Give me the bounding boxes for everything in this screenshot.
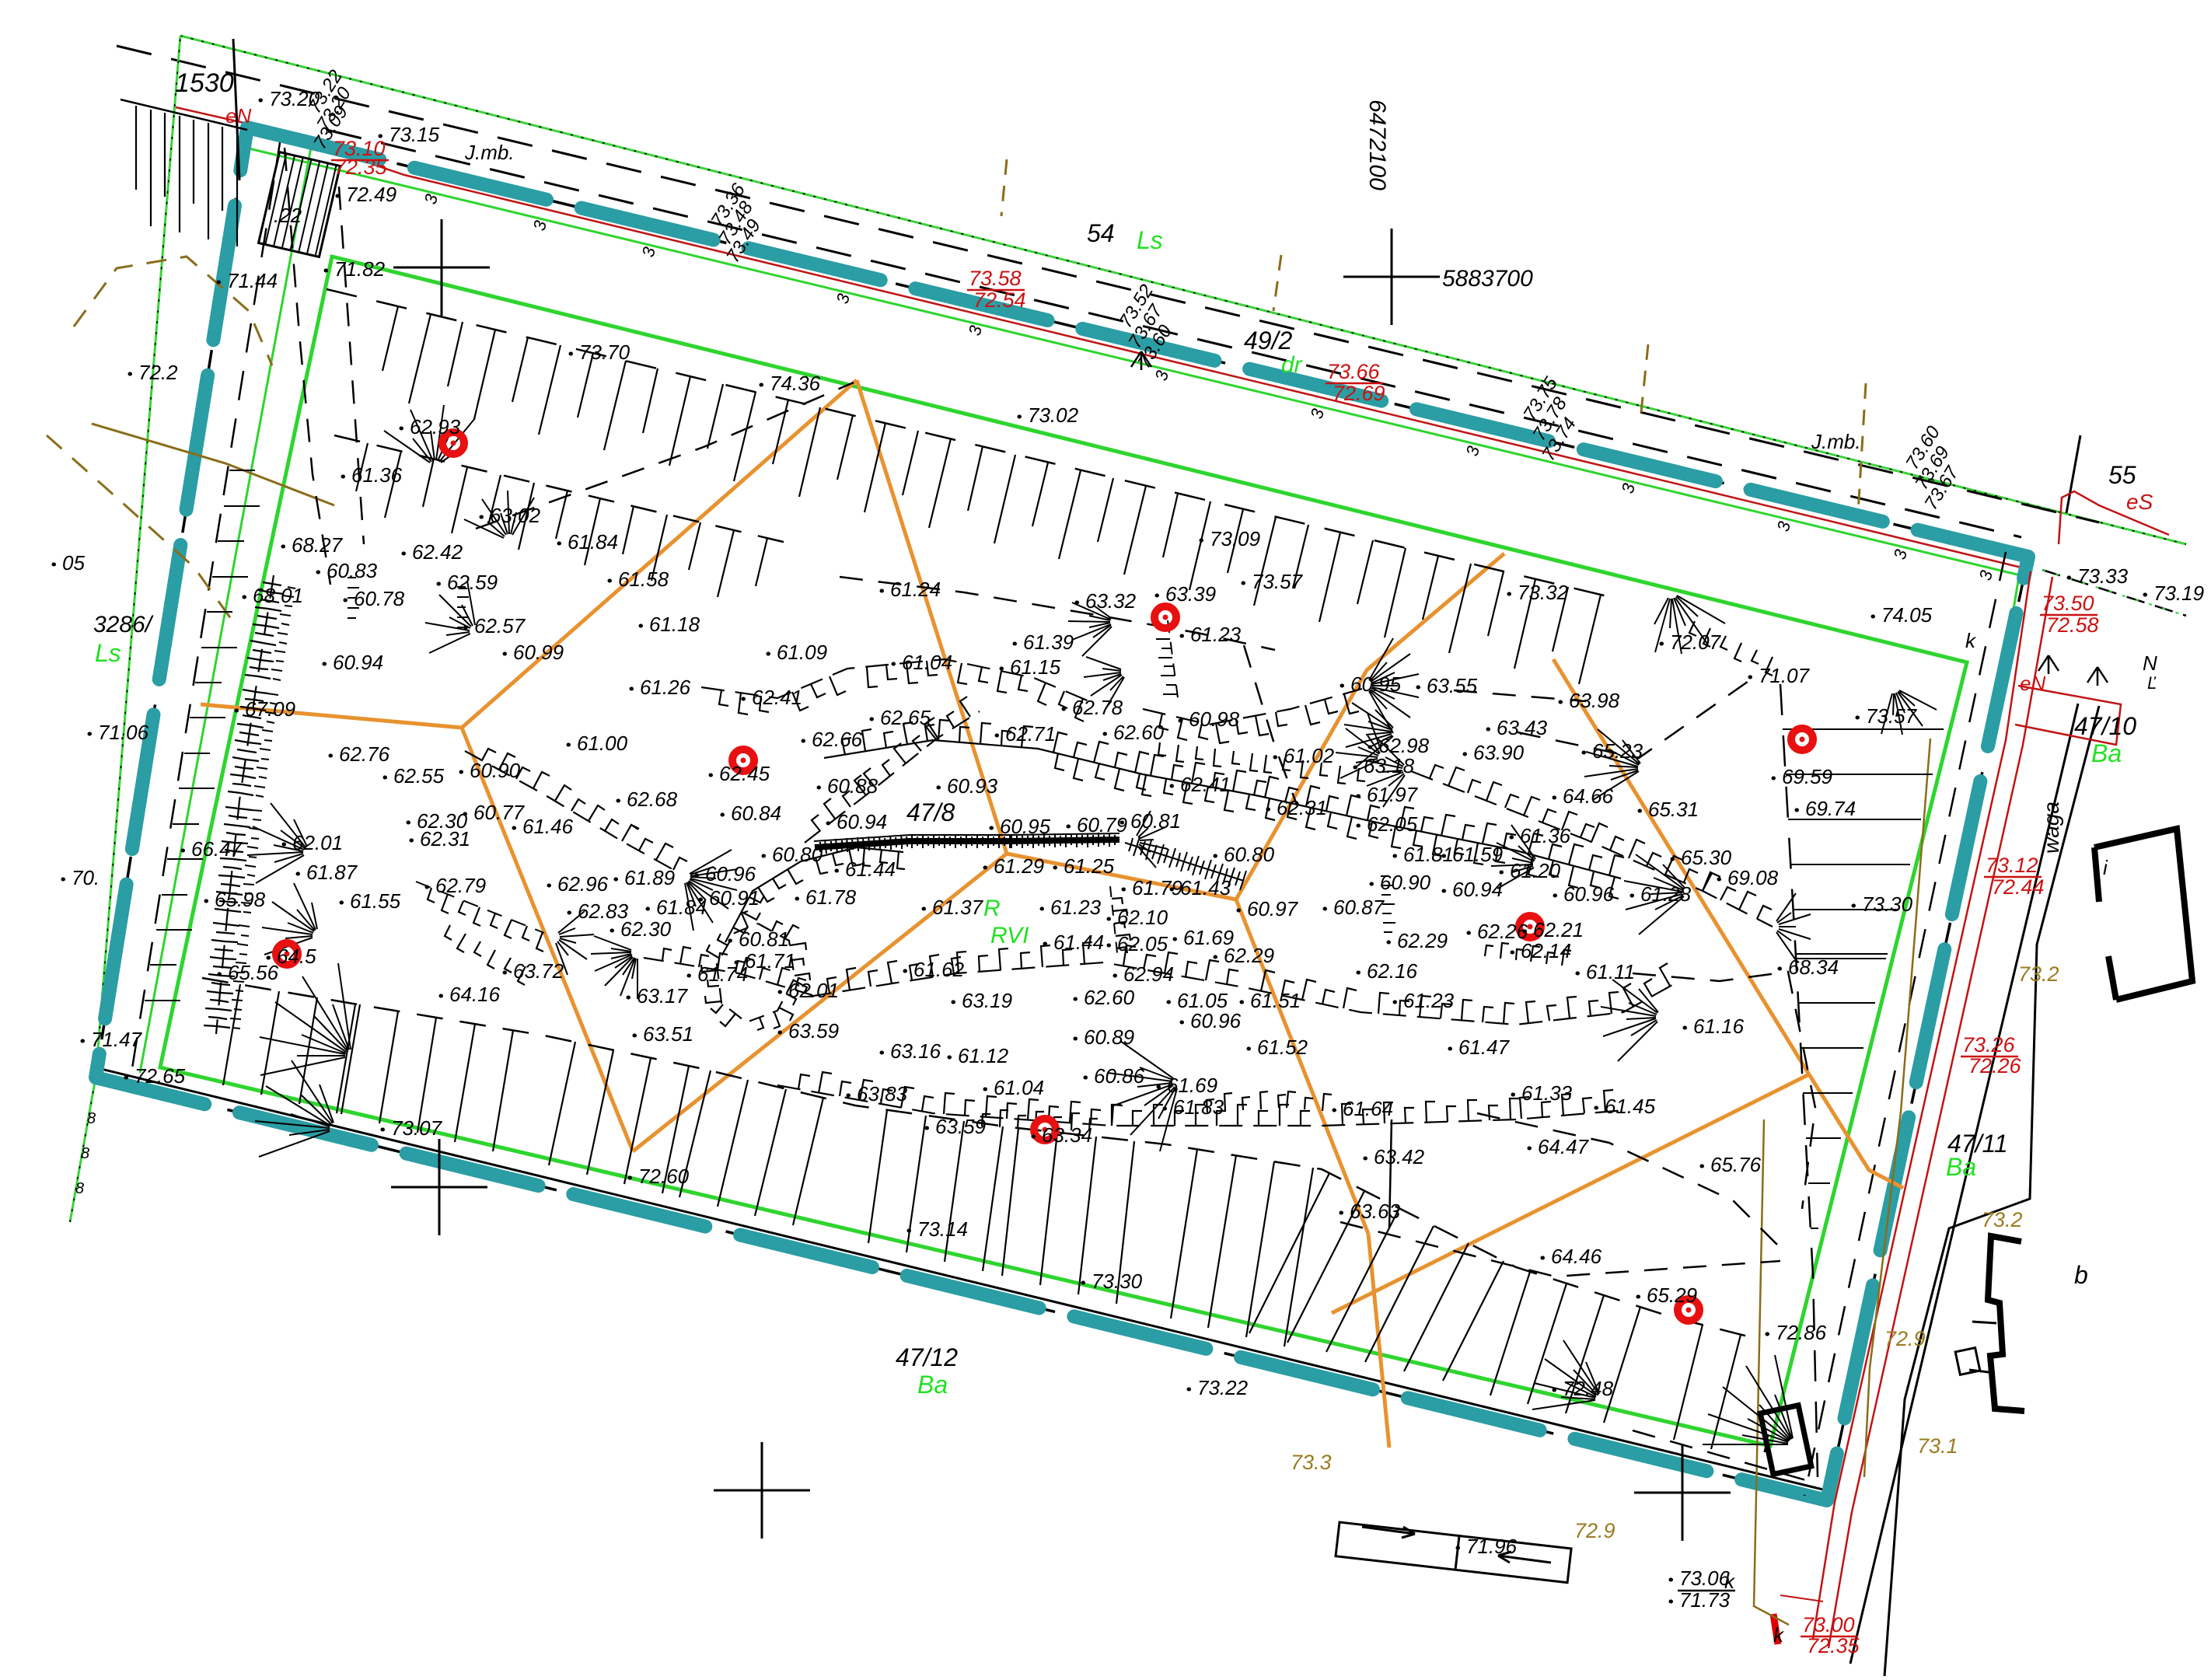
svg-text:61.79: 61.79	[1132, 876, 1182, 899]
svg-text:72.48: 72.48	[1563, 1377, 1614, 1400]
svg-text:62.01: 62.01	[788, 979, 839, 1002]
svg-text:60.86: 60.86	[1094, 1064, 1145, 1088]
svg-text:73.22: 73.22	[1197, 1376, 1249, 1399]
svg-text:61.37: 61.37	[932, 896, 984, 919]
svg-text:72.9: 72.9	[1884, 1327, 1926, 1350]
svg-text:61.62: 61.62	[913, 958, 965, 981]
svg-text:71.73: 71.73	[1679, 1588, 1731, 1612]
svg-text:60.98: 60.98	[1189, 707, 1240, 731]
svg-text:61.23: 61.23	[1050, 896, 1102, 919]
svg-text:61.51: 61.51	[1250, 989, 1301, 1012]
svg-text:J.mb.: J.mb.	[1811, 430, 1861, 453]
svg-text:60.95: 60.95	[1000, 815, 1051, 838]
svg-text:73.06: 73.06	[1679, 1566, 1731, 1590]
svg-text:73.07: 73.07	[391, 1116, 443, 1140]
svg-text:72.2: 72.2	[138, 361, 178, 384]
svg-text:Ls: Ls	[95, 639, 121, 667]
svg-text:72.65: 72.65	[134, 1064, 186, 1088]
svg-text:62.05: 62.05	[1367, 812, 1418, 836]
svg-text:J.mb.: J.mb.	[464, 141, 515, 164]
svg-text:61.83: 61.83	[1173, 1095, 1224, 1119]
svg-text:71.47: 71.47	[91, 1028, 143, 1051]
svg-text:60.97: 60.97	[1247, 897, 1299, 920]
svg-text:60.94: 60.94	[837, 810, 887, 833]
svg-text:60.96: 60.96	[1563, 882, 1615, 906]
svg-text:69.08: 69.08	[1727, 866, 1779, 889]
svg-text:71.07: 71.07	[1759, 664, 1811, 687]
svg-text:1530: 1530	[175, 68, 234, 98]
svg-text:61.36: 61.36	[351, 463, 403, 487]
svg-text:Ba: Ba	[1946, 1153, 1976, 1181]
svg-text:64.46: 64.46	[1551, 1245, 1602, 1268]
svg-text:05: 05	[62, 551, 85, 575]
svg-text:69.74: 69.74	[1805, 797, 1856, 820]
svg-text:73.58: 73.58	[969, 267, 1022, 290]
svg-text:72.58: 72.58	[2046, 613, 2099, 637]
svg-text:63.43: 63.43	[1497, 716, 1548, 739]
svg-text:62.57: 62.57	[474, 614, 526, 637]
svg-text:60.80: 60.80	[1224, 843, 1275, 866]
svg-text:64.16: 64.16	[449, 983, 501, 1006]
svg-text:62.60: 62.60	[1084, 986, 1135, 1009]
svg-text:47/8: 47/8	[906, 798, 955, 826]
svg-text:60.78: 60.78	[354, 587, 405, 610]
svg-text:61.33: 61.33	[1521, 1081, 1573, 1105]
svg-text:62.05: 62.05	[1117, 932, 1168, 955]
svg-text:61.25: 61.25	[1064, 854, 1115, 878]
svg-text:60.89: 60.89	[1084, 1025, 1134, 1049]
svg-text:61.71: 61.71	[745, 949, 795, 973]
svg-text:61.44: 61.44	[1053, 931, 1104, 954]
svg-text:63.39: 63.39	[1165, 582, 1216, 606]
svg-text:61.11: 61.11	[1586, 960, 1635, 983]
svg-text:61.24: 61.24	[890, 578, 941, 601]
svg-text:60.96: 60.96	[1190, 1009, 1242, 1032]
svg-text:74.05: 74.05	[1881, 603, 1933, 627]
svg-text:k: k	[1965, 629, 1977, 652]
svg-text:60.84: 60.84	[731, 802, 781, 825]
svg-text:70.: 70.	[72, 866, 100, 889]
svg-text:71.96: 71.96	[1466, 1535, 1518, 1558]
svg-text:61.89: 61.89	[624, 866, 675, 889]
svg-text:64.5: 64.5	[277, 945, 316, 968]
svg-text:73.26: 73.26	[1962, 1033, 2016, 1057]
svg-text:73.2: 73.2	[1982, 1208, 2023, 1231]
svg-text:62.55: 62.55	[393, 764, 445, 788]
svg-text:65.30: 65.30	[1681, 846, 1732, 869]
svg-text:62.29: 62.29	[1397, 929, 1448, 952]
svg-text:60.90: 60.90	[1380, 871, 1431, 894]
svg-text:61.23: 61.23	[1403, 989, 1455, 1012]
svg-text:62.66: 62.66	[812, 728, 863, 751]
svg-text:62.41: 62.41	[1180, 773, 1231, 796]
svg-text:61.02: 61.02	[1284, 744, 1335, 767]
svg-text:64.47: 64.47	[1538, 1135, 1590, 1158]
svg-text:47/10: 47/10	[2074, 712, 2136, 740]
svg-text:61.36: 61.36	[1520, 824, 1571, 847]
svg-text:73.32: 73.32	[1518, 581, 1569, 604]
svg-text:62.78: 62.78	[1072, 696, 1123, 719]
svg-text:73.70: 73.70	[579, 341, 630, 364]
svg-text:63.63: 63.63	[1350, 1200, 1401, 1223]
svg-text:73.19: 73.19	[2153, 582, 2204, 605]
svg-text:61.09: 61.09	[777, 641, 827, 664]
svg-text:73.33: 73.33	[2077, 564, 2129, 588]
svg-text:Ba: Ba	[917, 1371, 948, 1399]
svg-text:72.44: 72.44	[1992, 875, 2045, 899]
svg-text:61.58: 61.58	[618, 568, 669, 591]
svg-text:62.71: 62.71	[1005, 722, 1056, 746]
svg-text:72.69: 72.69	[1333, 382, 1385, 405]
svg-text:8: 8	[75, 1180, 84, 1197]
svg-text:72.07: 72.07	[1670, 630, 1722, 654]
svg-text:b: b	[2074, 1261, 2088, 1289]
svg-text:66.47: 66.47	[191, 837, 243, 861]
svg-text:73.57: 73.57	[1866, 704, 1918, 728]
svg-text:72.86: 72.86	[1776, 1321, 1827, 1344]
svg-text:62.31: 62.31	[420, 827, 470, 850]
svg-text:63.59: 63.59	[788, 1019, 839, 1043]
svg-text:55: 55	[2108, 461, 2136, 489]
svg-text:63.51: 63.51	[643, 1022, 693, 1046]
svg-text:61.00: 61.00	[577, 732, 628, 755]
svg-text:63.16: 63.16	[890, 1039, 941, 1063]
svg-text:72.35: 72.35	[1807, 1634, 1860, 1657]
svg-text:73.09: 73.09	[1210, 527, 1260, 550]
svg-text:61.23: 61.23	[1190, 623, 1242, 646]
svg-text:61.04: 61.04	[994, 1076, 1044, 1099]
svg-text:61.59: 61.59	[1452, 843, 1503, 866]
svg-text:60.91: 60.91	[709, 886, 760, 910]
svg-text:62.65: 62.65	[880, 706, 931, 729]
svg-text:60.88: 60.88	[827, 774, 878, 798]
svg-text:61.84: 61.84	[568, 530, 618, 554]
svg-text:62.79: 62.79	[435, 874, 486, 897]
svg-text:47/12: 47/12	[896, 1343, 958, 1371]
svg-text:73.66: 73.66	[1327, 360, 1381, 383]
svg-text:61.87: 61.87	[306, 861, 358, 884]
svg-text:61.16: 61.16	[1693, 1015, 1745, 1038]
svg-text:eN: eN	[225, 104, 251, 127]
svg-text:65.56: 65.56	[228, 961, 279, 984]
svg-text:65.23: 65.23	[1592, 739, 1643, 763]
svg-text:61.26: 61.26	[640, 676, 691, 699]
svg-text:62.42: 62.42	[412, 540, 463, 564]
svg-text:63.17: 63.17	[637, 984, 689, 1008]
svg-text:61.44: 61.44	[845, 857, 896, 881]
svg-text:60.94: 60.94	[333, 651, 383, 674]
svg-text:63.18: 63.18	[1364, 754, 1415, 777]
svg-text:63.55: 63.55	[1427, 674, 1478, 697]
svg-text:60.90: 60.90	[470, 759, 521, 782]
svg-text:N: N	[2143, 651, 2157, 675]
svg-text:8: 8	[81, 1145, 89, 1162]
svg-text:61.15: 61.15	[1010, 655, 1061, 679]
svg-text:63.83: 63.83	[857, 1082, 908, 1105]
svg-text:61.47: 61.47	[1458, 1036, 1511, 1059]
svg-text:68 01: 68 01	[253, 584, 303, 607]
svg-text:60.96: 60.96	[705, 862, 756, 885]
svg-text:72.49: 72.49	[346, 183, 396, 206]
svg-text:64.66: 64.66	[1563, 784, 1614, 808]
svg-text:61.12: 61.12	[958, 1044, 1009, 1067]
svg-text:62.41: 62.41	[752, 686, 802, 709]
svg-text:61.18: 61.18	[649, 613, 700, 636]
svg-text:62.94: 62.94	[1123, 962, 1174, 986]
svg-text:62.93: 62.93	[410, 415, 461, 438]
svg-text:73.00: 73.00	[1802, 1613, 1855, 1636]
svg-text:62.76: 62.76	[339, 742, 390, 766]
svg-text:61.78: 61.78	[805, 885, 857, 909]
svg-text:dr: dr	[1281, 352, 1303, 378]
svg-text:62.10: 62.10	[1117, 906, 1168, 929]
svg-text:61.52: 61.52	[1257, 1036, 1308, 1059]
svg-text:73.12: 73.12	[1986, 854, 2038, 877]
svg-text:61.20: 61.20	[1510, 859, 1561, 882]
svg-text:60.95: 60.95	[1350, 672, 1402, 696]
svg-text:60.99: 60.99	[513, 641, 564, 664]
svg-text:63.32: 63.32	[1085, 589, 1137, 613]
svg-text:72.35: 72.35	[334, 155, 388, 179]
svg-text:62.29: 62.29	[1224, 944, 1274, 967]
svg-text:73.3: 73.3	[1291, 1451, 1332, 1474]
svg-text:63.59: 63.59	[935, 1115, 986, 1138]
svg-text:RVI: RVI	[990, 923, 1029, 948]
svg-text:60.94: 60.94	[1452, 878, 1503, 901]
svg-text:60.77: 60.77	[473, 801, 526, 824]
svg-text:65.29: 65.29	[1647, 1284, 1697, 1307]
svg-text:73.30: 73.30	[1862, 892, 1913, 916]
svg-text:63.02: 63.02	[490, 504, 541, 527]
svg-text:61.28: 61.28	[1640, 882, 1692, 906]
svg-text:.22: .22	[274, 204, 302, 227]
svg-text:61.39: 61.39	[1023, 630, 1074, 654]
svg-text:73.57: 73.57	[1252, 570, 1304, 593]
svg-text:62.59: 62.59	[447, 571, 498, 594]
svg-text:k: k	[1773, 1623, 1785, 1647]
svg-text:67.09: 67.09	[245, 697, 295, 721]
svg-text:61.29: 61.29	[994, 854, 1044, 878]
svg-text:72.54: 72.54	[973, 288, 1026, 312]
svg-text:5883700: 5883700	[1442, 266, 1533, 292]
svg-text:60.83: 60.83	[327, 559, 378, 582]
svg-text:eS: eS	[2126, 490, 2153, 514]
svg-text:61.43: 61.43	[1180, 876, 1231, 899]
svg-text:61.45: 61.45	[1605, 1095, 1656, 1118]
svg-text:k: k	[1724, 1570, 1736, 1593]
svg-text:62.60: 62.60	[1113, 721, 1165, 744]
svg-text:73.02: 73.02	[1028, 403, 1079, 427]
svg-text:74.36: 74.36	[770, 372, 821, 395]
svg-text:63.90: 63.90	[1473, 741, 1525, 764]
svg-text:8: 8	[87, 1110, 96, 1127]
svg-text:62.21: 62.21	[1533, 918, 1584, 941]
svg-text:71.06: 71.06	[98, 721, 149, 744]
svg-text:61.55: 61.55	[350, 889, 401, 913]
svg-text:62.68: 62.68	[627, 788, 678, 811]
svg-text:73.1: 73.1	[1917, 1434, 1958, 1458]
svg-text:65.31: 65.31	[1648, 798, 1699, 821]
svg-text:63.98: 63.98	[1569, 689, 1620, 712]
svg-text:73.30: 73.30	[1092, 1270, 1143, 1293]
svg-text:6472100: 6472100	[1364, 100, 1390, 190]
svg-text:49/2: 49/2	[1244, 327, 1292, 355]
svg-text:61.81: 61.81	[1403, 843, 1454, 866]
svg-text:62.01: 62.01	[292, 831, 343, 854]
svg-text:62.14: 62.14	[1521, 939, 1571, 962]
svg-text:72.26: 72.26	[1968, 1054, 2022, 1078]
svg-text:Ls: Ls	[1137, 226, 1163, 254]
svg-text:62.45: 62.45	[719, 762, 770, 785]
svg-text:62.96: 62.96	[557, 872, 609, 896]
svg-text:61.04: 61.04	[902, 651, 952, 674]
svg-text:60.93: 60.93	[947, 774, 998, 798]
svg-text:60.81: 60.81	[739, 927, 789, 951]
svg-text:eN: eN	[2020, 672, 2045, 695]
svg-text:61.69: 61.69	[1167, 1074, 1217, 1097]
svg-text:69.59: 69.59	[1782, 765, 1832, 788]
svg-text:54: 54	[1087, 219, 1115, 247]
svg-text:3286/: 3286/	[93, 612, 154, 637]
svg-text:71.44: 71.44	[227, 269, 278, 292]
svg-text:65.98: 65.98	[215, 888, 266, 911]
svg-text:62.31: 62.31	[1277, 796, 1327, 819]
svg-text:63.72: 63.72	[513, 959, 564, 983]
svg-text:Ba: Ba	[2091, 739, 2122, 767]
svg-text:60.81: 60.81	[1130, 809, 1181, 833]
svg-text:60.87: 60.87	[1333, 896, 1385, 919]
svg-text:60.80: 60.80	[772, 843, 823, 866]
svg-text:61.74: 61.74	[697, 962, 748, 986]
svg-text:73.15: 73.15	[389, 123, 440, 146]
svg-text:65.76: 65.76	[1710, 1153, 1762, 1176]
svg-text:73.2: 73.2	[2018, 962, 2059, 986]
svg-text:63.42: 63.42	[1374, 1145, 1425, 1168]
svg-text:Ľ: Ľ	[2147, 673, 2157, 693]
svg-text:72.9: 72.9	[1574, 1519, 1615, 1542]
svg-text:62.16: 62.16	[1367, 959, 1418, 983]
svg-text:73.14: 73.14	[917, 1217, 968, 1241]
svg-text:61.64: 61.64	[1343, 1097, 1393, 1120]
svg-text:68.27: 68.27	[292, 533, 344, 557]
svg-text:61.97: 61.97	[1367, 783, 1419, 806]
svg-text:63.34: 63.34	[1042, 1123, 1092, 1147]
svg-text:73.50: 73.50	[2042, 592, 2094, 615]
svg-text:waga: waga	[2039, 802, 2063, 854]
svg-text:68.34: 68.34	[1788, 955, 1839, 979]
svg-text:60.79: 60.79	[1077, 813, 1127, 837]
svg-text:63.19: 63.19	[962, 989, 1012, 1012]
svg-text:61.46: 61.46	[522, 815, 574, 838]
svg-text:71.82: 71.82	[334, 257, 386, 281]
svg-text:R: R	[983, 896, 1001, 921]
svg-text:72.60: 72.60	[638, 1165, 690, 1188]
svg-text:62.30: 62.30	[620, 917, 672, 941]
